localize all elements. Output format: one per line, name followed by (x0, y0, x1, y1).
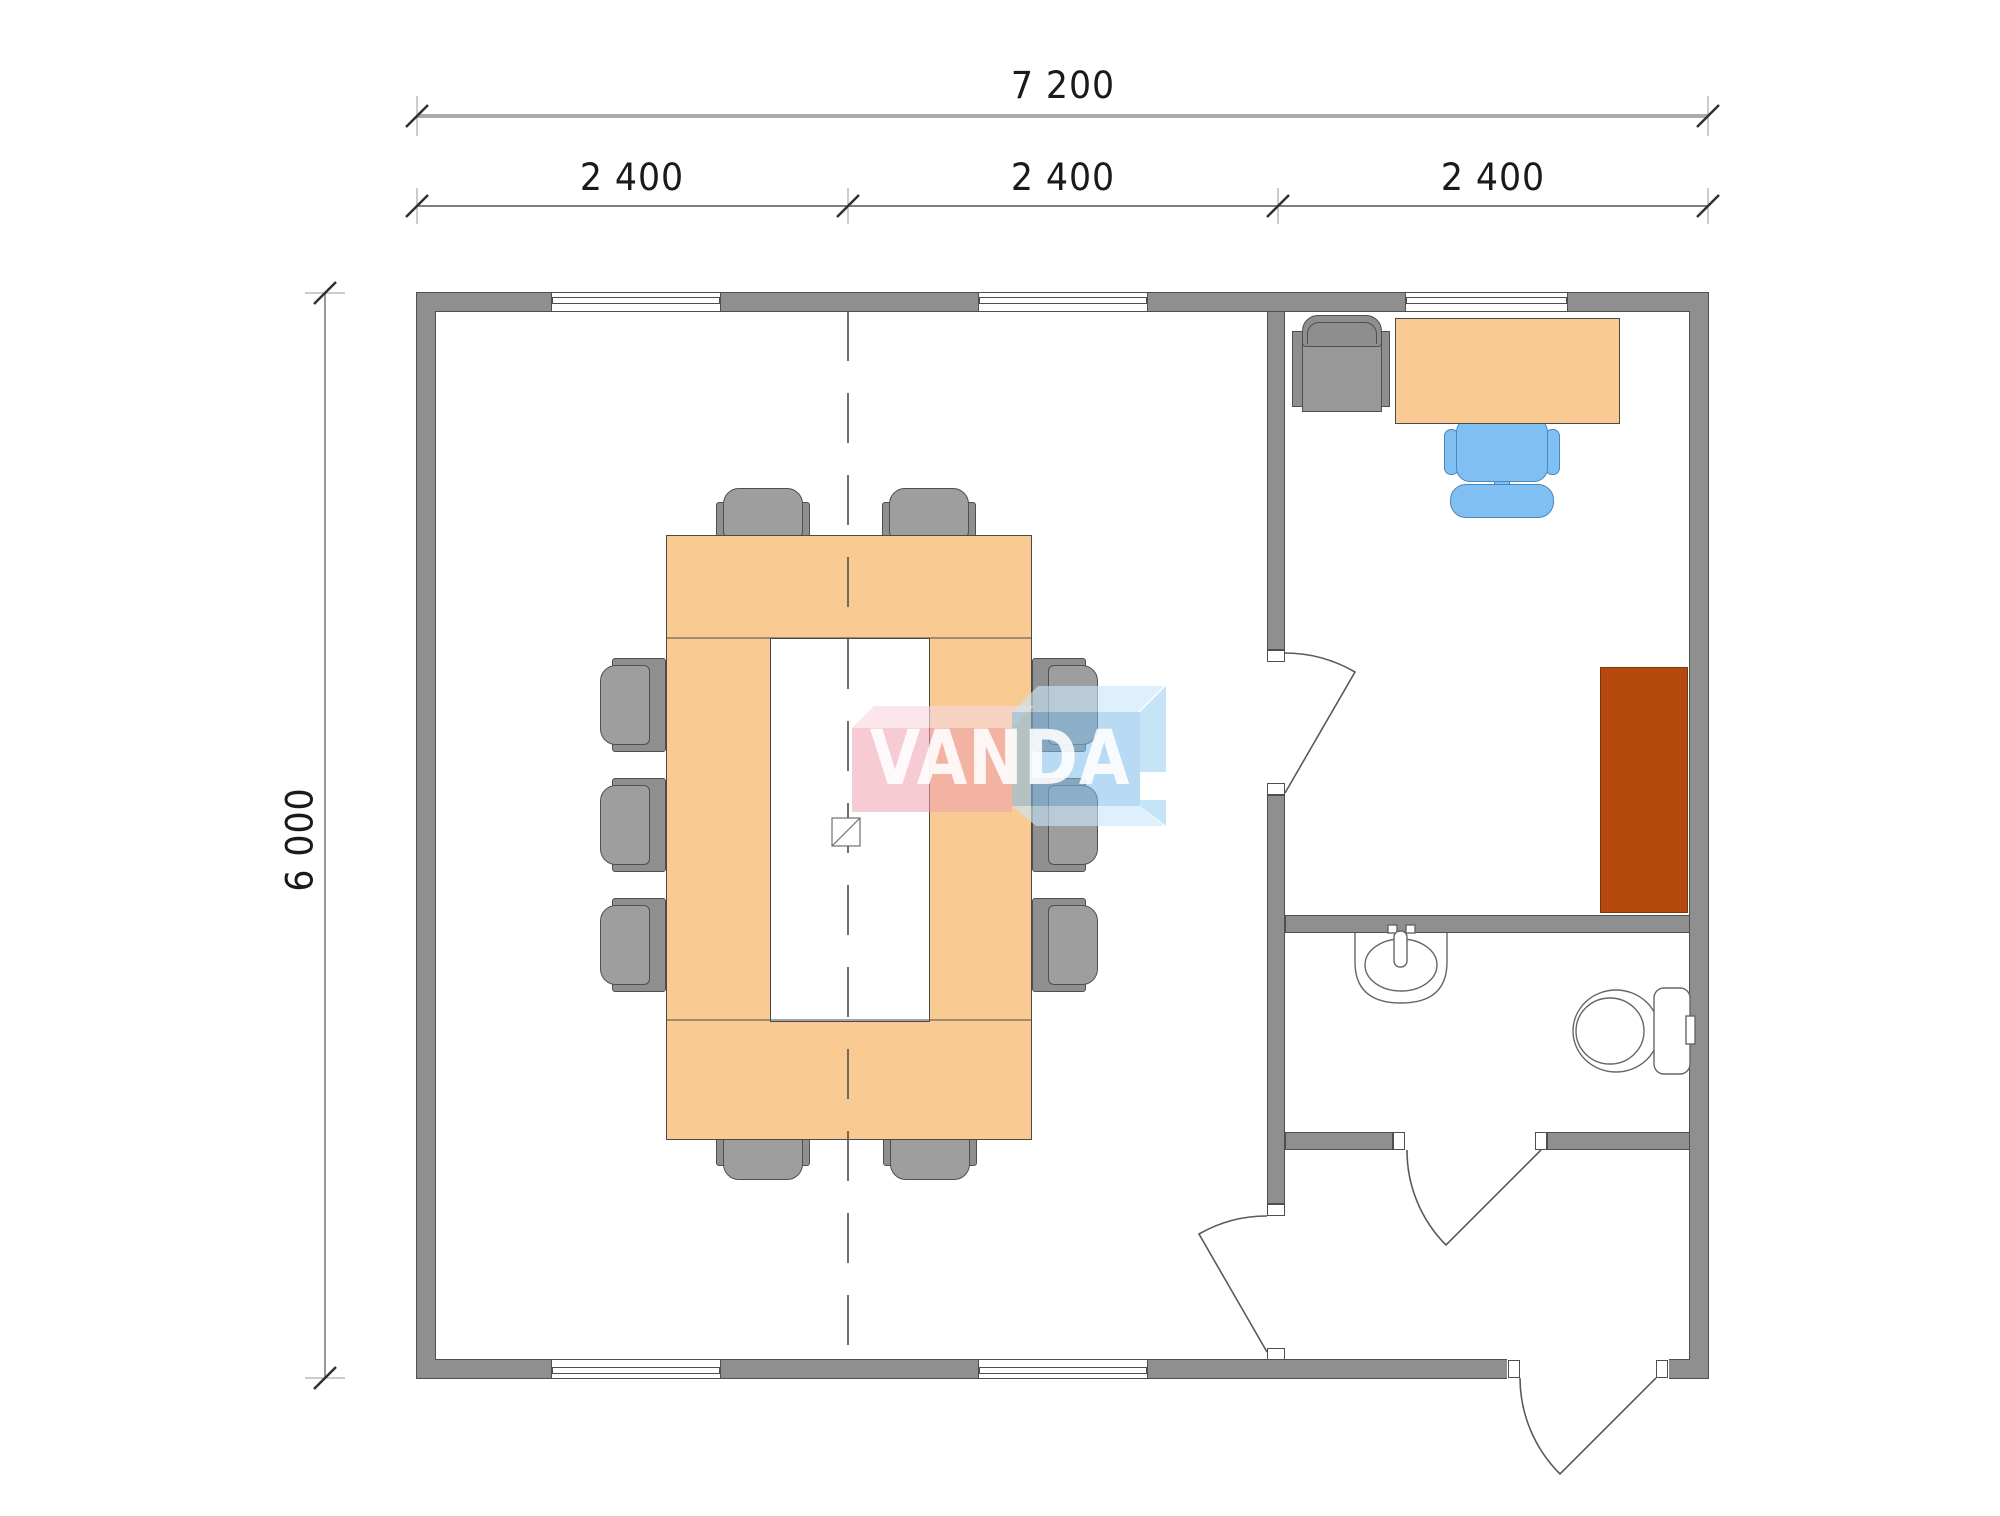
floor-plan-canvas: 7 200 2 400 2 400 2 400 6 000 (0, 0, 2000, 1516)
dimension-line-height (305, 282, 345, 1389)
linework-overlay (0, 0, 2000, 1516)
entrance-door (1520, 1378, 1656, 1474)
dimension-line-total-width (406, 96, 1719, 136)
bathroom-door (1407, 1150, 1541, 1245)
office-door (1285, 653, 1355, 793)
center-marker-icon (832, 818, 860, 846)
meeting-room-door (1199, 1216, 1267, 1352)
dimension-line-modules (406, 188, 1719, 224)
washbasin-icon (1355, 925, 1447, 1003)
toilet-icon (1573, 988, 1695, 1074)
